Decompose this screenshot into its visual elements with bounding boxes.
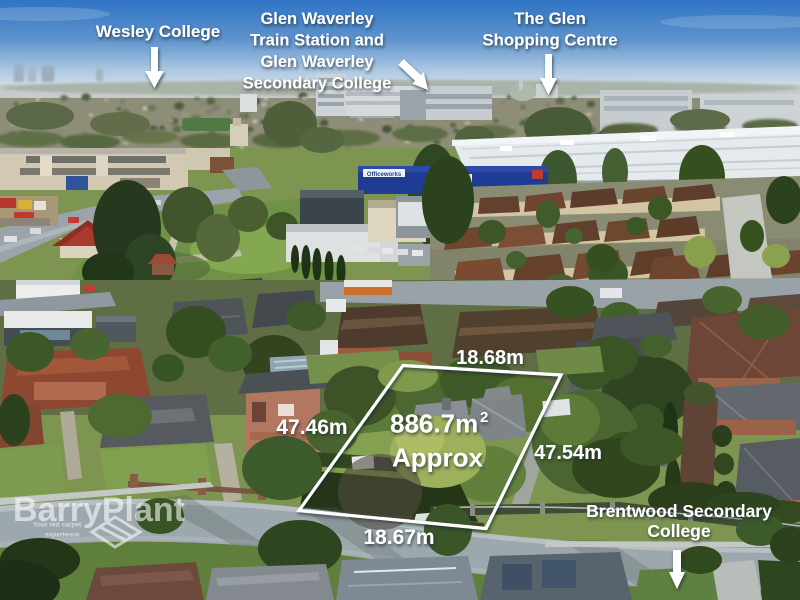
svg-text:Glen Waverley: Glen Waverley: [260, 10, 374, 28]
svg-text:47.46m: 47.46m: [276, 416, 347, 439]
svg-text:Glen Waverley: Glen Waverley: [260, 53, 374, 71]
svg-text:College: College: [647, 521, 710, 541]
svg-text:experience: experience: [45, 532, 80, 539]
svg-text:Your red carpet: Your red carpet: [33, 522, 82, 529]
svg-text:Train Station and: Train Station and: [250, 32, 384, 50]
svg-text:Approx: Approx: [392, 443, 484, 473]
svg-text:Shopping Centre: Shopping Centre: [482, 31, 617, 50]
svg-text:The Glen: The Glen: [514, 9, 586, 28]
svg-text:Officeworks: Officeworks: [367, 172, 402, 178]
svg-text:Secondary College: Secondary College: [243, 75, 392, 93]
svg-text:47.54m: 47.54m: [534, 442, 602, 464]
svg-text:18.68m: 18.68m: [456, 347, 524, 369]
svg-text:Brentwood Secondary: Brentwood Secondary: [586, 501, 772, 521]
svg-text:2: 2: [480, 409, 488, 426]
svg-text:Wesley College: Wesley College: [96, 22, 220, 41]
svg-text:886.7m: 886.7m: [390, 409, 478, 439]
svg-text:18.67m: 18.67m: [363, 526, 434, 549]
